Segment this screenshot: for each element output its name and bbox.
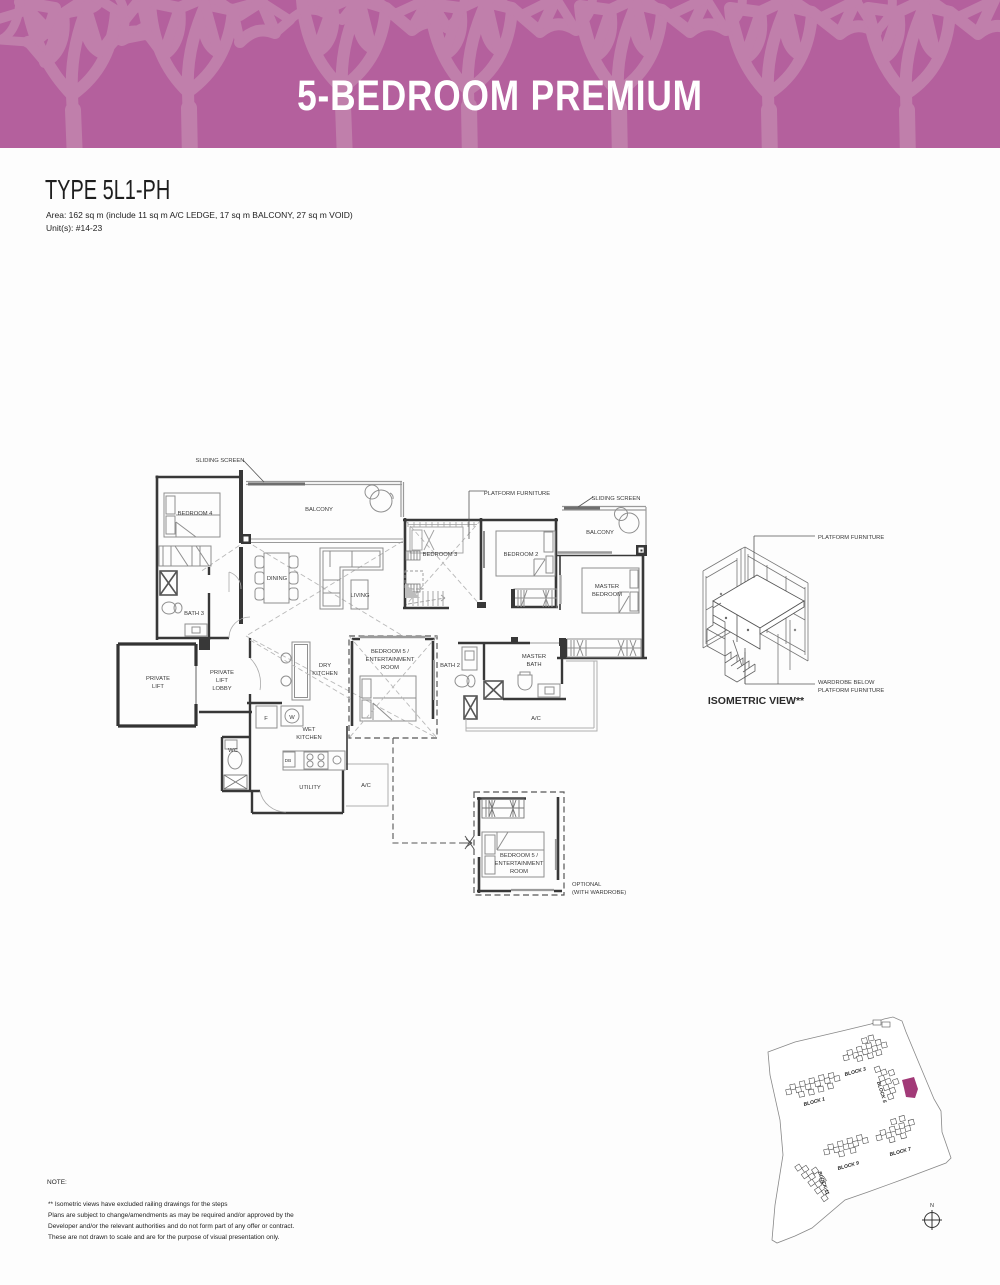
svg-text:DRY: DRY (319, 663, 331, 669)
svg-text:PLATFORM FURNITURE: PLATFORM FURNITURE (818, 688, 884, 694)
svg-text:LIVING: LIVING (350, 593, 369, 599)
svg-text:ENTERTAINMENT: ENTERTAINMENT (495, 861, 544, 867)
svg-text:F: F (264, 716, 268, 722)
svg-text:BALCONY: BALCONY (586, 530, 614, 536)
svg-text:BEDROOM 5 /: BEDROOM 5 / (500, 853, 538, 859)
svg-text:DINING: DINING (267, 576, 288, 582)
svg-text:KITCHEN: KITCHEN (296, 735, 321, 741)
svg-text:BEDROOM 4: BEDROOM 4 (178, 511, 214, 517)
svg-text:DB: DB (285, 758, 291, 763)
svg-text:ROOM: ROOM (381, 665, 399, 671)
svg-text:PLATFORM FURNITURE: PLATFORM FURNITURE (484, 491, 550, 497)
svg-text:WET: WET (303, 727, 316, 733)
svg-text:W: W (289, 715, 295, 721)
svg-text:MASTER: MASTER (522, 654, 546, 660)
svg-text:WC: WC (228, 748, 238, 754)
svg-text:BEDROOM 2: BEDROOM 2 (504, 552, 539, 558)
svg-text:SLIDING SCREEN: SLIDING SCREEN (592, 496, 641, 502)
svg-text:PLATFORM FURNITURE: PLATFORM FURNITURE (818, 535, 884, 541)
svg-text:BALCONY: BALCONY (305, 507, 333, 513)
svg-text:MASTER: MASTER (595, 584, 619, 590)
svg-text:SLIDING SCREEN: SLIDING SCREEN (196, 458, 245, 464)
svg-text:OPTIONAL: OPTIONAL (572, 882, 602, 888)
svg-text:BATH 3: BATH 3 (184, 611, 204, 617)
svg-text:N: N (930, 1203, 934, 1209)
svg-text:BEDROOM 5 /: BEDROOM 5 / (371, 649, 409, 655)
svg-text:PRIVATE: PRIVATE (210, 670, 234, 676)
svg-text:ROOM: ROOM (510, 869, 528, 875)
svg-text:LIFT: LIFT (152, 684, 164, 690)
svg-text:WARDROBE BELOW: WARDROBE BELOW (818, 680, 875, 686)
svg-text:ENTERTAINMENT: ENTERTAINMENT (366, 657, 415, 663)
svg-text:KITCHEN: KITCHEN (312, 671, 337, 677)
svg-text:(WITH WARDROBE): (WITH WARDROBE) (572, 890, 626, 896)
svg-text:BATH: BATH (526, 662, 541, 668)
svg-text:A/C: A/C (361, 783, 371, 789)
svg-text:UTILITY: UTILITY (299, 785, 321, 791)
svg-text:PRIVATE: PRIVATE (146, 676, 170, 682)
svg-text:BEDROOM 3: BEDROOM 3 (423, 552, 458, 558)
svg-text:LOBBY: LOBBY (212, 686, 231, 692)
svg-text:LIFT: LIFT (216, 678, 228, 684)
svg-text:A/C: A/C (531, 716, 541, 722)
svg-text:BEDROOM: BEDROOM (592, 592, 622, 598)
svg-text:BATH 2: BATH 2 (440, 663, 460, 669)
svg-text:ISOMETRIC VIEW**: ISOMETRIC VIEW** (708, 695, 805, 707)
